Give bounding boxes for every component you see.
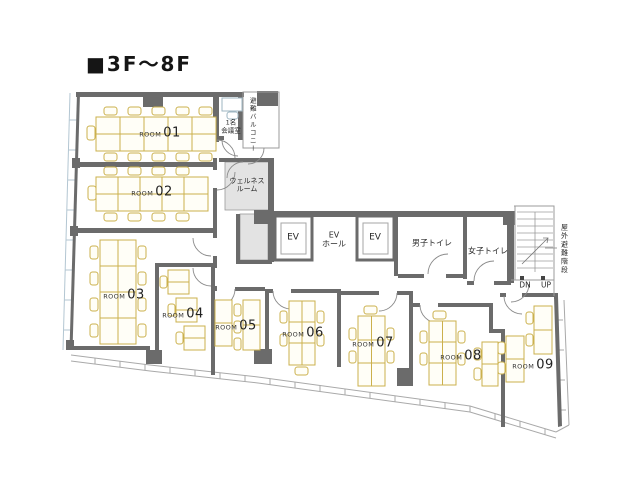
meeting-room-label: 1名 会議室 [221, 119, 241, 134]
wellness-room-label: ウェルネス ルーム [230, 177, 265, 194]
room-07-label: ROOM07 [352, 335, 394, 350]
floorplan-page: ■3F～8F ROOM01 ROOM02 ROOM03 ROOM04 ROOM0… [0, 0, 640, 480]
ev-hall-label: EV ホール [322, 231, 346, 250]
room-05-label: ROOM05 [215, 318, 257, 333]
womens-toilet-label: 女子トイレ [468, 246, 508, 255]
page-title: ■3F～8F [86, 48, 192, 77]
stair-up-label: UP [541, 282, 551, 291]
room-03-label: ROOM03 [103, 287, 145, 302]
balcony-label: 避難バルコニー [249, 97, 256, 153]
room-06-label: ROOM06 [282, 325, 324, 340]
room-02-label: ROOM02 [131, 184, 173, 199]
room-09-label: ROOM09 [512, 357, 554, 372]
elevator-right-label: EV [369, 233, 381, 244]
staircase [515, 206, 554, 280]
room-01-label: ROOM01 [139, 125, 181, 140]
room-08-label: ROOM08 [440, 348, 482, 363]
mens-toilet-label: 男子トイレ [412, 238, 452, 247]
stair-down-label: DN [519, 282, 530, 291]
outdoor-stair-label: 屋外避難階段 [561, 224, 568, 275]
elevator-left-label: EV [287, 233, 299, 244]
room-04-label: ROOM04 [162, 306, 204, 321]
